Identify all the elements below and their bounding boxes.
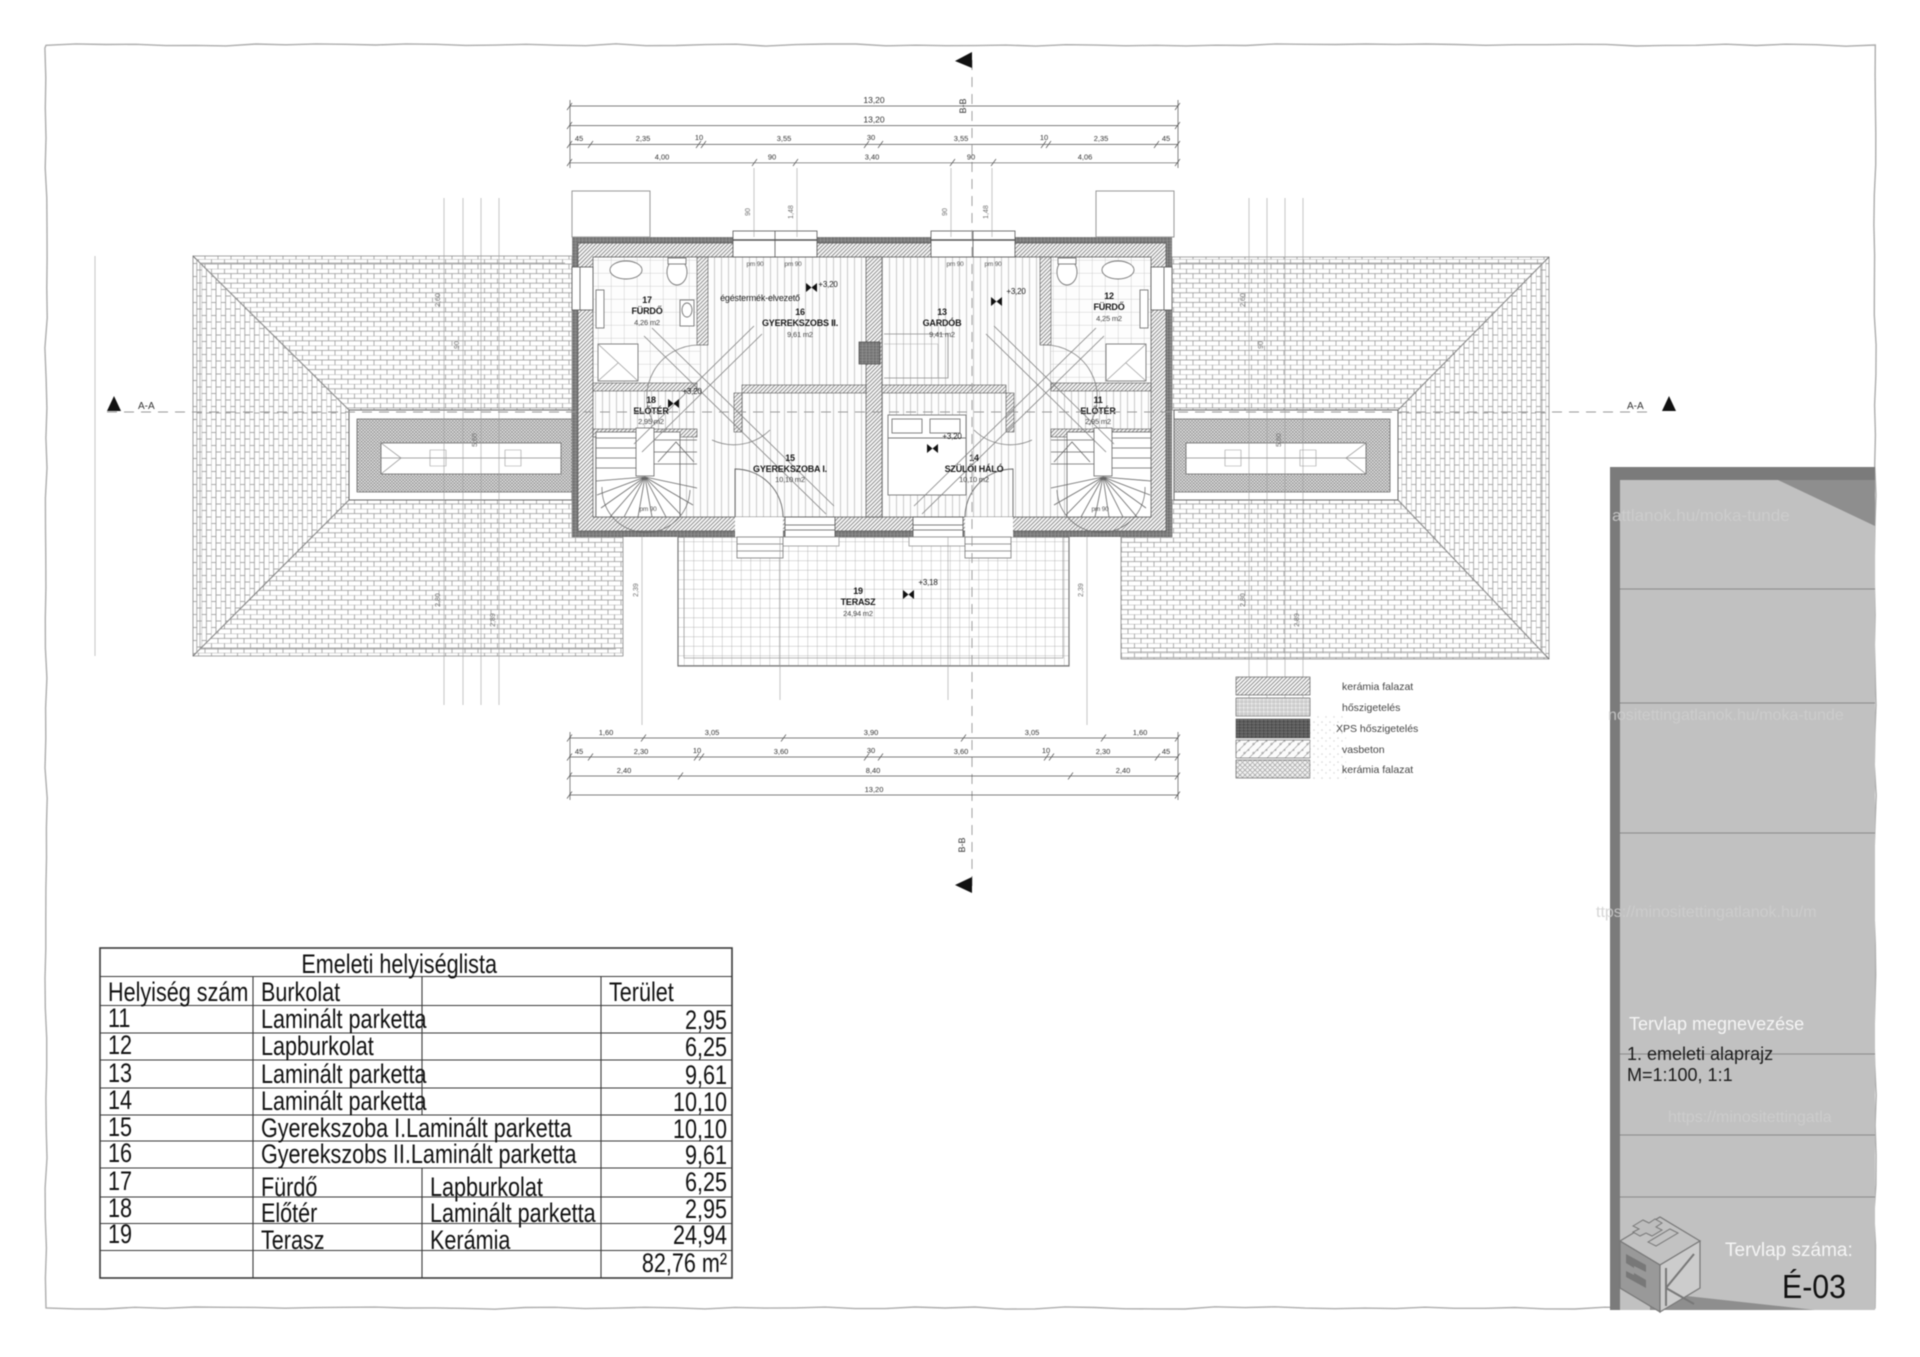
svg-text:pm 90: pm 90 — [984, 261, 1002, 268]
svg-text:pm 90: pm 90 — [746, 261, 764, 268]
svg-text:1,48: 1,48 — [983, 205, 990, 219]
svg-text:A-A: A-A — [1627, 401, 1644, 412]
svg-text:2,30: 2,30 — [634, 747, 649, 756]
svg-text:pm 90: pm 90 — [1091, 506, 1109, 513]
svg-text:45: 45 — [1162, 134, 1170, 143]
svg-text:Kerámia: Kerámia — [430, 1226, 511, 1256]
svg-text:2,30: 2,30 — [1096, 747, 1111, 756]
svg-text:2,35: 2,35 — [636, 134, 651, 143]
svg-text:Tervlap megnevezése: Tervlap megnevezése — [1629, 1014, 1804, 1034]
svg-text:2,60: 2,60 — [1240, 293, 1247, 307]
svg-text:1,48: 1,48 — [788, 205, 795, 219]
svg-text:10,10 m2: 10,10 m2 — [959, 475, 989, 484]
svg-text:1,60: 1,60 — [599, 728, 614, 737]
svg-text:2,80: 2,80 — [1240, 593, 1247, 607]
svg-text:45: 45 — [575, 747, 583, 756]
svg-text:2,89: 2,89 — [1294, 613, 1301, 627]
svg-text:90: 90 — [942, 208, 949, 216]
svg-text:2,35: 2,35 — [1094, 134, 1109, 143]
svg-text:13,20: 13,20 — [863, 115, 885, 125]
svg-text:Terület: Terület — [609, 978, 674, 1008]
svg-text:14: 14 — [969, 453, 979, 463]
svg-text:4,25 m2: 4,25 m2 — [1096, 314, 1122, 323]
svg-text:17: 17 — [108, 1167, 132, 1197]
svg-text:10: 10 — [1040, 133, 1048, 142]
svg-text:M=1:100, 1:1: M=1:100, 1:1 — [1627, 1065, 1733, 1085]
svg-text:14: 14 — [108, 1086, 132, 1116]
svg-text:Gyerekszobs II.Laminált parket: Gyerekszobs II.Laminált parketta — [261, 1140, 577, 1170]
svg-text:12: 12 — [108, 1031, 132, 1061]
svg-text:https://minositettingatla: https://minositettingatla — [1668, 1109, 1832, 1126]
svg-text:19: 19 — [108, 1220, 132, 1250]
svg-text:13,20: 13,20 — [863, 95, 885, 105]
svg-text:2,40: 2,40 — [1116, 766, 1131, 775]
svg-text:+3,20: +3,20 — [818, 280, 838, 289]
svg-text:GYEREKSZOBS II.: GYEREKSZOBS II. — [762, 318, 838, 328]
svg-text:ELŐTÉR: ELŐTÉR — [1080, 405, 1116, 416]
svg-text:10,10: 10,10 — [673, 1088, 727, 1118]
svg-text:3,60: 3,60 — [774, 747, 789, 756]
svg-text:9,61: 9,61 — [685, 1141, 727, 1171]
svg-text:B-B: B-B — [957, 837, 967, 852]
svg-text:6,25: 6,25 — [685, 1033, 727, 1063]
svg-text:Előtér: Előtér — [261, 1199, 317, 1229]
svg-text:GARDÓB: GARDÓB — [923, 317, 962, 328]
svg-text:82,76 m²: 82,76 m² — [642, 1249, 727, 1279]
svg-text:A-A: A-A — [138, 401, 155, 412]
svg-text:2,60: 2,60 — [435, 293, 442, 307]
svg-text:45: 45 — [575, 134, 583, 143]
svg-text:17: 17 — [642, 295, 652, 305]
svg-text:4,00: 4,00 — [655, 153, 670, 162]
svg-text:90: 90 — [768, 153, 776, 162]
svg-text:13: 13 — [108, 1059, 132, 1089]
svg-text:3,90: 3,90 — [864, 728, 879, 737]
svg-text:égéstermék-elvezető: égéstermék-elvezető — [720, 293, 800, 303]
svg-text:GYEREKSZOBA I.: GYEREKSZOBA I. — [753, 464, 827, 474]
svg-text:Lapburkolat: Lapburkolat — [261, 1032, 374, 1062]
svg-text:pm 90: pm 90 — [946, 261, 964, 268]
svg-text:2,40: 2,40 — [617, 766, 632, 775]
svg-text:+3,20: +3,20 — [942, 432, 962, 441]
svg-text:Burkolat: Burkolat — [261, 978, 340, 1008]
svg-text:8,40: 8,40 — [866, 766, 881, 775]
svg-text:É-03: É-03 — [1782, 1268, 1846, 1305]
svg-text:TERASZ: TERASZ — [841, 597, 877, 607]
svg-text:2,39: 2,39 — [633, 583, 640, 597]
svg-text:kerámia falazat: kerámia falazat — [1342, 764, 1413, 776]
svg-text:9,61 m2: 9,61 m2 — [787, 330, 813, 339]
svg-text:90: 90 — [454, 341, 461, 349]
svg-text:5,60: 5,60 — [472, 433, 479, 447]
svg-text:11: 11 — [108, 1004, 130, 1034]
svg-text:3,05: 3,05 — [705, 728, 720, 737]
svg-text:kerámia falazat: kerámia falazat — [1342, 681, 1413, 693]
svg-text:ttps://minositettingatlanok.hu: ttps://minositettingatlanok.hu/m — [1596, 904, 1817, 921]
svg-text:90: 90 — [745, 208, 752, 216]
svg-text:18: 18 — [646, 395, 656, 405]
svg-text:+3,20: +3,20 — [1006, 287, 1026, 296]
svg-text:10,10 m2: 10,10 m2 — [775, 475, 805, 484]
svg-text:10: 10 — [1042, 746, 1050, 755]
svg-text:2,95 m2: 2,95 m2 — [1085, 417, 1111, 426]
svg-text:1. emeleti alaprajz: 1. emeleti alaprajz — [1627, 1044, 1773, 1064]
svg-text:3,55: 3,55 — [954, 134, 969, 143]
svg-text:2,80: 2,80 — [435, 593, 442, 607]
svg-text:XPS hőszigetelés: XPS hőszigetelés — [1336, 723, 1418, 735]
svg-text:+3,18: +3,18 — [918, 578, 938, 587]
svg-text:2,95: 2,95 — [685, 1006, 727, 1036]
svg-text:nositettingatlanok.hu/moka-tun: nositettingatlanok.hu/moka-tunde — [1608, 707, 1844, 724]
svg-text:FÜRDŐ: FÜRDŐ — [632, 305, 663, 316]
svg-text:9,61: 9,61 — [685, 1061, 727, 1091]
svg-text:9,41 m2: 9,41 m2 — [929, 330, 955, 339]
svg-text:3,60: 3,60 — [954, 747, 969, 756]
svg-text:90: 90 — [1258, 341, 1265, 349]
svg-text:30: 30 — [867, 746, 875, 755]
svg-text:Tervlap száma:: Tervlap száma: — [1725, 1240, 1853, 1261]
svg-text:30: 30 — [867, 133, 875, 142]
svg-text:4,26 m2: 4,26 m2 — [634, 318, 660, 327]
svg-text:hőszigetelés: hőszigetelés — [1342, 702, 1400, 714]
svg-text:10: 10 — [695, 133, 703, 142]
svg-text:45: 45 — [1162, 747, 1170, 756]
svg-text:24,94 m2: 24,94 m2 — [843, 609, 873, 618]
svg-text:16: 16 — [795, 307, 805, 317]
svg-text:12: 12 — [1104, 291, 1114, 301]
svg-text:ELŐTÉR: ELŐTÉR — [633, 405, 669, 416]
svg-text:10: 10 — [693, 746, 701, 755]
svg-text:Laminált parketta: Laminált parketta — [261, 1087, 427, 1117]
svg-text:1,60: 1,60 — [1133, 728, 1148, 737]
svg-text:Laminált parketta: Laminált parketta — [261, 1060, 427, 1090]
svg-text:Emeleti helyiséglista: Emeleti helyiséglista — [301, 950, 497, 980]
svg-text:19: 19 — [853, 586, 863, 596]
svg-text:3,55: 3,55 — [777, 134, 792, 143]
svg-text:SZÜLŐI HÁLÓ: SZÜLŐI HÁLÓ — [945, 463, 1004, 474]
svg-text:pm 90: pm 90 — [784, 261, 802, 268]
svg-text:24,94: 24,94 — [673, 1221, 727, 1251]
svg-text:2,39: 2,39 — [1078, 583, 1085, 597]
svg-text:5,60: 5,60 — [1276, 433, 1283, 447]
svg-text:FÜRDŐ: FÜRDŐ — [1094, 301, 1125, 312]
svg-text:16: 16 — [108, 1139, 132, 1169]
svg-text:+3,20: +3,20 — [682, 387, 702, 396]
svg-text:vasbeton: vasbeton — [1342, 744, 1385, 756]
svg-text:13: 13 — [937, 307, 947, 317]
svg-text:Terasz: Terasz — [261, 1226, 325, 1256]
svg-text:15: 15 — [785, 453, 795, 463]
svg-text:pm 90: pm 90 — [639, 506, 657, 513]
svg-text:6,25: 6,25 — [685, 1168, 727, 1198]
svg-text:13,20: 13,20 — [865, 785, 884, 794]
svg-text:3,05: 3,05 — [1025, 728, 1040, 737]
svg-text:2,89: 2,89 — [490, 613, 497, 627]
svg-text:Laminált parketta: Laminált parketta — [261, 1005, 427, 1035]
svg-text:11: 11 — [1093, 395, 1102, 405]
svg-text:3,40: 3,40 — [865, 153, 880, 162]
svg-text:90: 90 — [967, 153, 975, 162]
svg-text:4,06: 4,06 — [1078, 153, 1093, 162]
svg-text:Laminált parketta: Laminált parketta — [430, 1199, 596, 1229]
svg-text:attlanok.hu/moka-tunde: attlanok.hu/moka-tunde — [1612, 506, 1790, 525]
svg-text:2,95 m2: 2,95 m2 — [638, 417, 664, 426]
